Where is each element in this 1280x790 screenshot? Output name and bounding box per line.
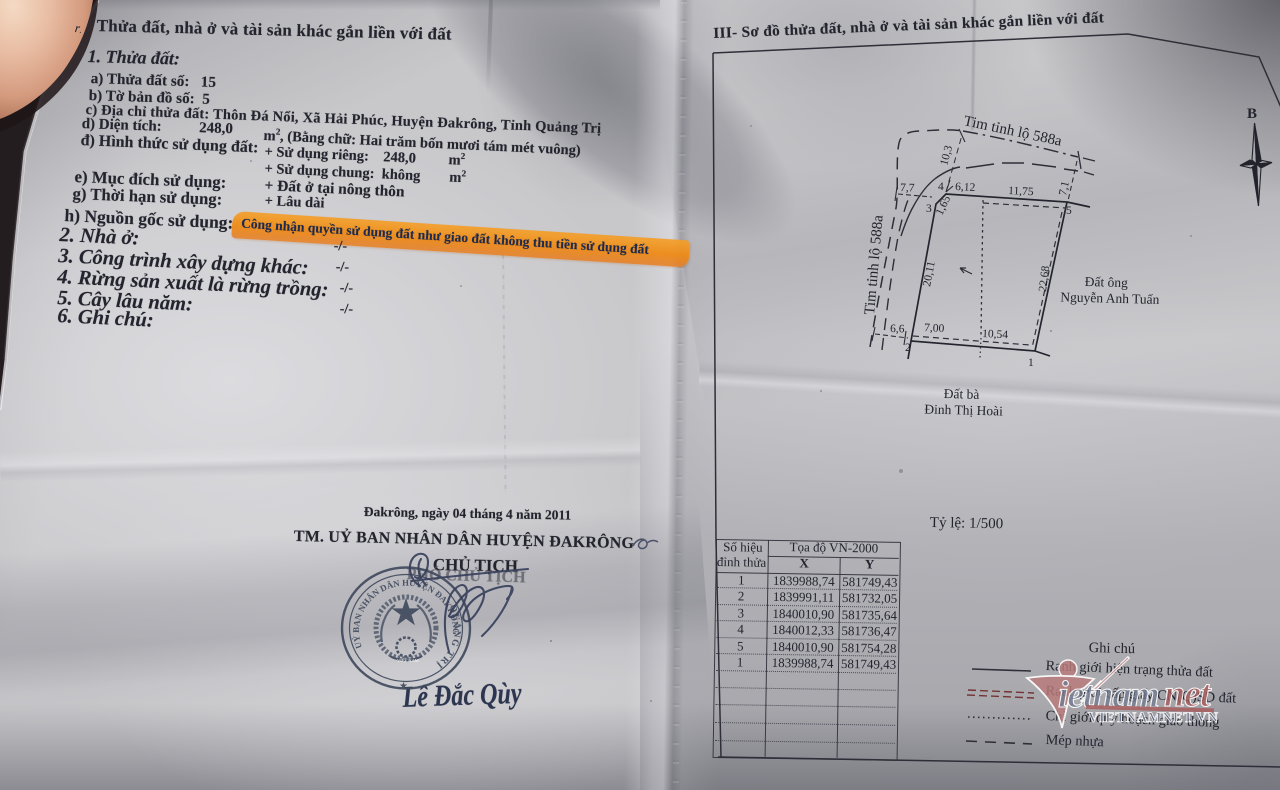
- svg-text:7,1: 7,1: [1057, 180, 1072, 197]
- svg-text:1: 1: [1028, 357, 1034, 369]
- svg-text:6,12: 6,12: [955, 181, 976, 194]
- svg-text:5: 5: [1066, 205, 1072, 217]
- svg-text:1,65: 1,65: [934, 194, 953, 218]
- svg-text:7,00: 7,00: [924, 322, 945, 335]
- svg-text:10,54: 10,54: [982, 328, 1009, 341]
- svg-text:6,6: 6,6: [890, 323, 905, 336]
- svg-text:7,7: 7,7: [900, 182, 915, 195]
- svg-text:4: 4: [938, 181, 944, 193]
- svg-text:Tim tỉnh lộ 588a: Tim tỉnh lộ 588a: [862, 214, 887, 315]
- svg-text:VIETNAMNET.VN: VIETNAMNET.VN: [1088, 710, 1218, 726]
- svg-text:Tim tỉnh lộ 588a: Tim tỉnh lộ 588a: [962, 113, 1063, 149]
- svg-text:3: 3: [926, 203, 932, 215]
- svg-text:20,11: 20,11: [921, 260, 938, 288]
- svg-text:2: 2: [905, 342, 911, 354]
- svg-text:11,75: 11,75: [1008, 185, 1034, 198]
- svg-text:B: B: [1247, 106, 1257, 122]
- svg-text:VIỆT NAM: VIỆT NAM: [397, 658, 419, 663]
- svg-text:★: ★: [399, 681, 408, 692]
- svg-text:22,68: 22,68: [1037, 265, 1052, 292]
- svg-text:10,3: 10,3: [938, 144, 955, 167]
